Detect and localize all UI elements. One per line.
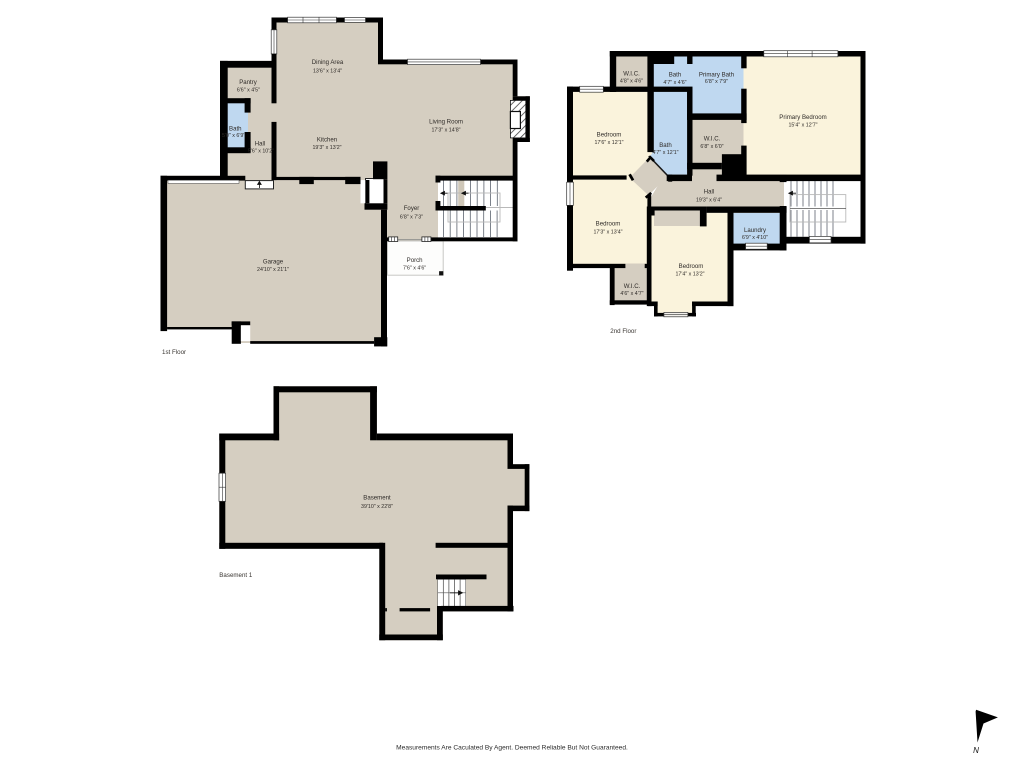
svg-text:Basement 1: Basement 1 [219,572,253,579]
svg-text:Laundry: Laundry [744,227,767,234]
svg-text:Dining Area: Dining Area [312,59,344,66]
svg-text:19'3" x 13'2": 19'3" x 13'2" [312,145,341,151]
svg-text:17'3" x 14'8": 17'3" x 14'8" [431,128,460,134]
svg-text:5'6" x 10'2": 5'6" x 10'2" [248,149,274,155]
svg-text:Bedroom: Bedroom [679,263,704,270]
svg-text:W.I.C.: W.I.C. [704,136,721,143]
svg-text:Bath: Bath [669,71,682,78]
svg-text:17'3" x 13'4": 17'3" x 13'4" [593,230,622,236]
svg-text:Bedroom: Bedroom [596,221,621,228]
svg-text:6'8" x 6'0": 6'8" x 6'0" [700,144,723,150]
svg-text:6'9" x 4'10": 6'9" x 4'10" [742,235,768,241]
svg-text:13'6" x 13'4": 13'6" x 13'4" [313,69,342,75]
svg-text:Living Room: Living Room [429,119,463,126]
svg-text:7'6" x 4'6": 7'6" x 4'6" [403,265,426,271]
svg-text:Porch: Porch [407,257,423,264]
svg-text:Measurements Are Caculated By: Measurements Are Caculated By Agent. Dee… [396,745,628,752]
svg-text:Foyer: Foyer [404,205,420,212]
svg-text:Kitchen: Kitchen [317,136,337,143]
svg-text:2nd Floor: 2nd Floor [610,328,636,335]
svg-text:Primary Bath: Primary Bath [699,71,734,78]
svg-text:15'4" x 12'7": 15'4" x 12'7" [788,123,817,129]
svg-text:Garage: Garage [263,259,284,266]
svg-text:Bath: Bath [229,125,242,132]
svg-text:W.I.C.: W.I.C. [624,283,641,290]
svg-text:24'10" x 21'1": 24'10" x 21'1" [257,267,289,273]
svg-text:6'8" x 7'3": 6'8" x 7'3" [400,215,423,221]
svg-text:Bath: Bath [659,142,672,149]
svg-text:19'3" x 6'4": 19'3" x 6'4" [696,198,722,204]
svg-text:Hall: Hall [704,189,715,196]
svg-text:4'7" x 4'6": 4'7" x 4'6" [663,80,686,86]
svg-text:17'4" x 13'2": 17'4" x 13'2" [675,272,704,278]
svg-text:4'8" x 4'6": 4'8" x 4'6" [620,78,643,84]
svg-text:Hall: Hall [255,141,266,148]
svg-text:Basement: Basement [363,495,391,502]
svg-text:39'10" x 22'8": 39'10" x 22'8" [361,504,393,510]
svg-text:Pantry: Pantry [239,79,258,86]
svg-text:5'0" x 6'9": 5'0" x 6'9" [222,133,245,139]
svg-text:Bedroom: Bedroom [597,132,622,139]
svg-text:4'7" x 12'1": 4'7" x 12'1" [652,150,678,156]
svg-text:N: N [973,746,979,755]
svg-text:4'6" x 4'7": 4'6" x 4'7" [620,291,643,297]
svg-text:1st Floor: 1st Floor [162,349,186,356]
svg-text:17'6" x 12'1": 17'6" x 12'1" [594,140,623,146]
svg-text:6'8" x 7'9": 6'8" x 7'9" [705,79,728,85]
svg-text:Primary Bedroom: Primary Bedroom [779,114,826,121]
svg-text:W.I.C.: W.I.C. [623,71,640,78]
svg-text:6'6" x 4'5": 6'6" x 4'5" [237,87,260,93]
